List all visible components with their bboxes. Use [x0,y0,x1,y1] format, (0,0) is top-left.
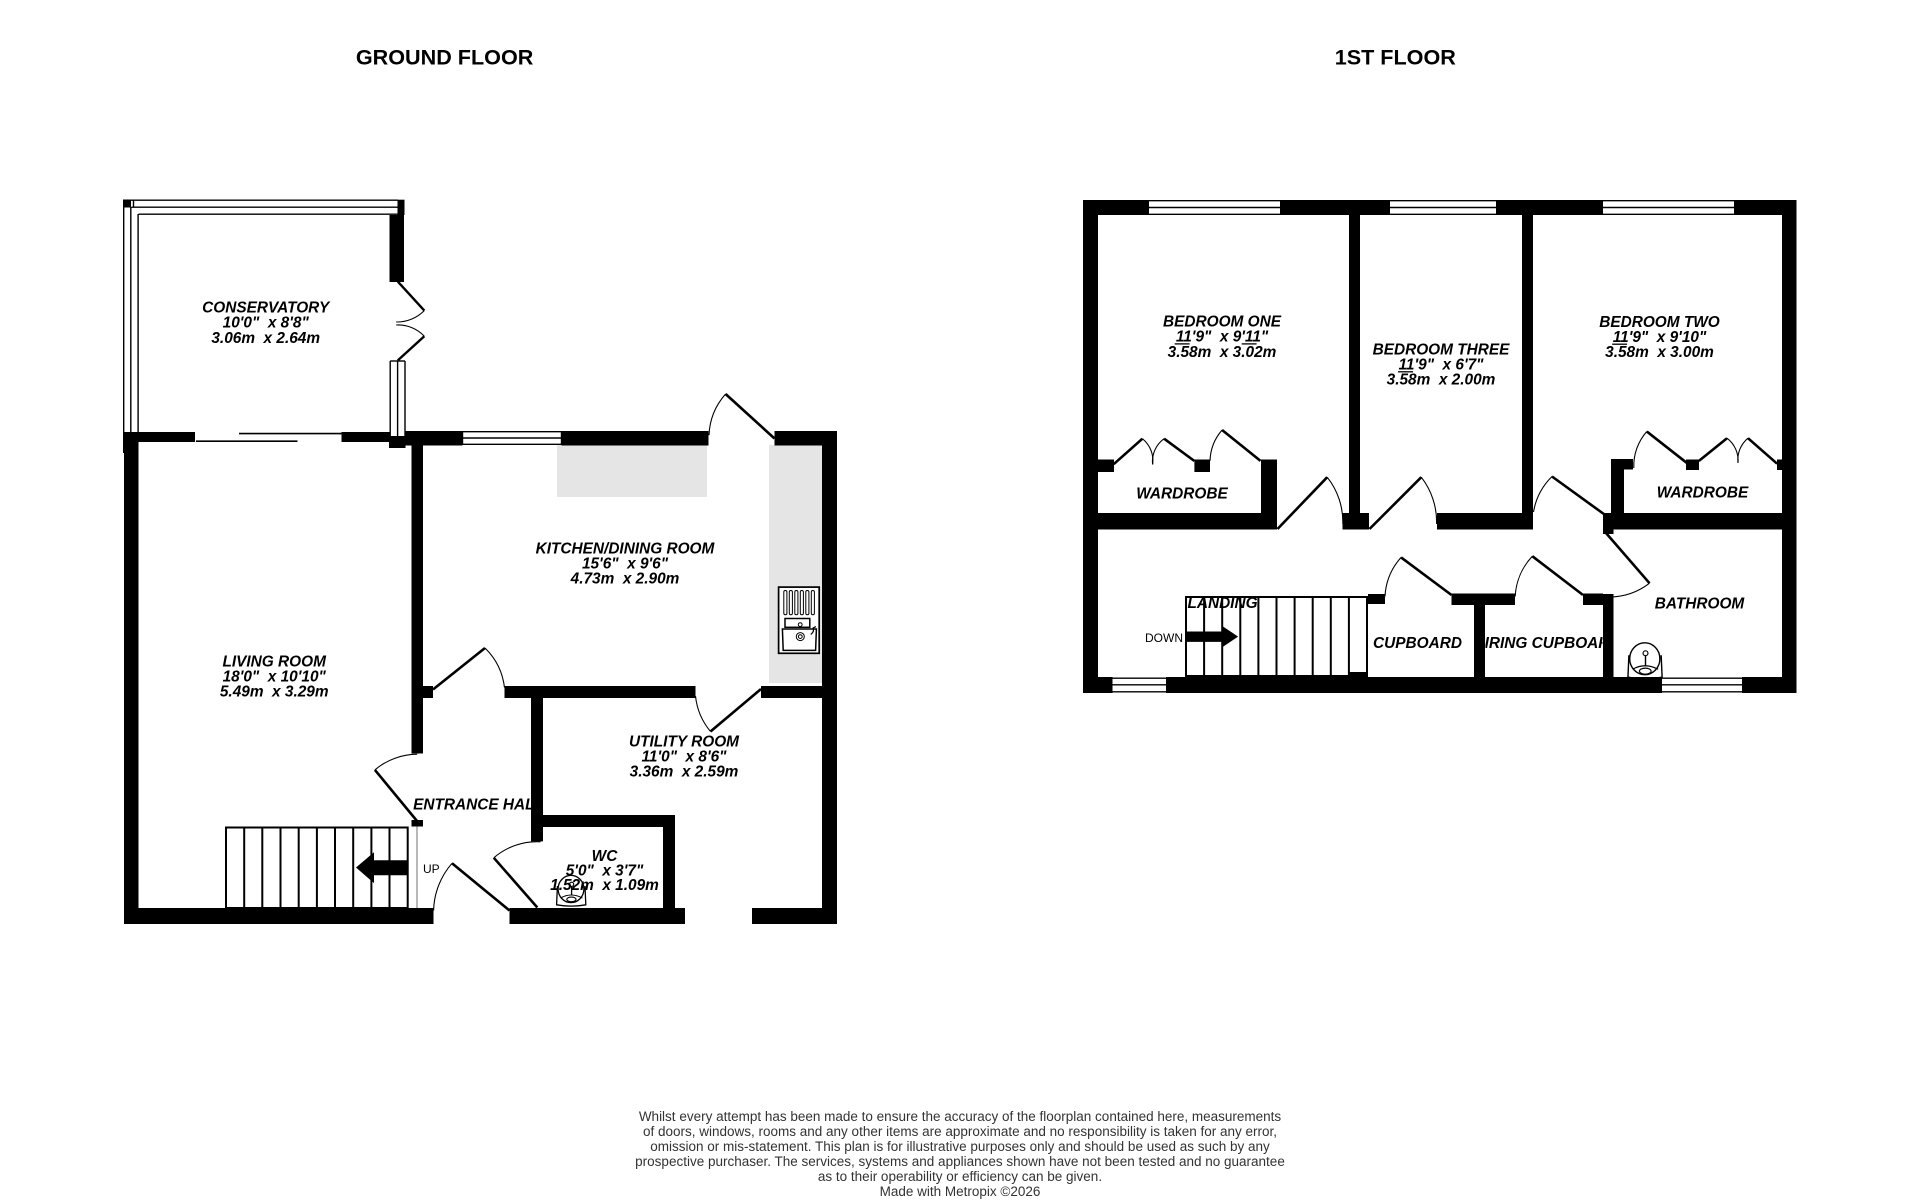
svg-text:1ST FLOOR: 1ST FLOOR [1335,45,1457,70]
svg-text:ENTRANCE HALL: ENTRANCE HALL [413,796,544,813]
svg-text:AIRING CUPBOARD: AIRING CUPBOARD [1472,635,1620,652]
svg-text:WARDROBE: WARDROBE [1136,485,1228,502]
svg-text:BATHROOM: BATHROOM [1655,595,1746,612]
svg-text:5.49m x 3.29m: 5.49m x 3.29m [220,684,329,701]
svg-text:Whilst every attempt has been: Whilst every attempt has been made to en… [639,1109,1282,1124]
svg-text:of doors, windows, rooms and a: of doors, windows, rooms and any other i… [643,1124,1277,1139]
svg-text:CUPBOARD: CUPBOARD [1373,635,1462,652]
svg-text:3.58m x 2.00m: 3.58m x 2.00m [1387,372,1496,389]
svg-text:3.58m x 3.02m: 3.58m x 3.02m [1168,344,1277,361]
svg-text:omission or mis-statement. Thi: omission or mis-statement. This plan is … [650,1139,1270,1154]
svg-text:LANDING: LANDING [1187,595,1257,612]
svg-text:1.52m x 1.09m: 1.52m x 1.09m [550,877,659,894]
svg-text:DOWN: DOWN [1145,631,1183,645]
svg-text:UP: UP [423,862,440,876]
svg-text:3.36m x 2.59m: 3.36m x 2.59m [630,764,739,781]
svg-text:WARDROBE: WARDROBE [1657,485,1749,502]
svg-text:4.73m x 2.90m: 4.73m x 2.90m [570,571,680,588]
svg-text:GROUND FLOOR: GROUND FLOOR [356,45,534,70]
svg-text:3.58m x 3.00m: 3.58m x 3.00m [1605,344,1714,361]
svg-text:3.06m x 2.64m: 3.06m x 2.64m [211,330,320,347]
svg-text:Made with Metropix ©2026: Made with Metropix ©2026 [880,1184,1041,1199]
svg-text:as to their operability or eff: as to their operability or efficiency ca… [818,1169,1102,1184]
svg-text:prospective purchaser. The ser: prospective purchaser. The services, sys… [635,1154,1285,1169]
